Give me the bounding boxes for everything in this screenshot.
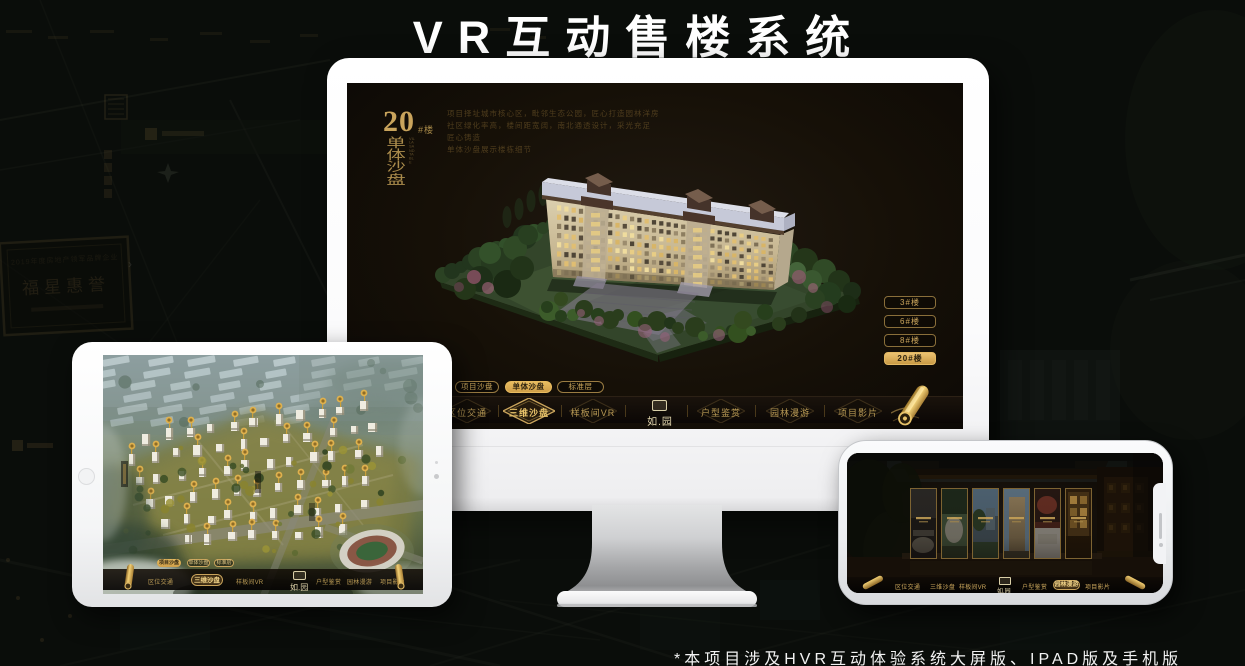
svg-text:›: ›	[128, 257, 132, 271]
